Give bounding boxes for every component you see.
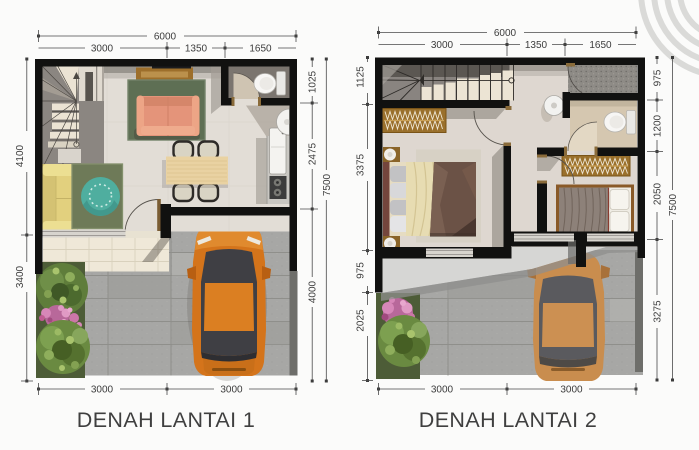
svg-text:4000: 4000: [308, 280, 319, 303]
svg-text:975: 975: [653, 69, 664, 86]
svg-text:3000: 3000: [91, 44, 114, 55]
svg-text:DENAH LANTAI 1: DENAH LANTAI 1: [77, 408, 255, 432]
svg-text:7500: 7500: [322, 173, 333, 196]
svg-text:2475: 2475: [308, 142, 319, 165]
svg-text:1125: 1125: [356, 66, 367, 88]
svg-text:3275: 3275: [653, 300, 664, 323]
svg-text:3000: 3000: [91, 385, 114, 396]
svg-text:1025: 1025: [308, 70, 319, 93]
svg-text:975: 975: [356, 262, 367, 279]
svg-text:3000: 3000: [431, 40, 454, 51]
svg-text:6000: 6000: [154, 32, 177, 43]
svg-text:1200: 1200: [653, 114, 664, 137]
svg-text:3000: 3000: [220, 385, 243, 396]
svg-text:6000: 6000: [494, 28, 517, 39]
svg-text:1650: 1650: [589, 40, 612, 51]
svg-text:2025: 2025: [356, 309, 367, 332]
svg-text:3375: 3375: [356, 153, 367, 176]
svg-text:2050: 2050: [653, 182, 664, 205]
svg-text:3000: 3000: [560, 385, 583, 396]
svg-text:DENAH LANTAI 2: DENAH LANTAI 2: [419, 408, 597, 432]
svg-text:3000: 3000: [431, 385, 454, 396]
svg-text:3400: 3400: [15, 265, 26, 288]
svg-text:7500: 7500: [668, 193, 679, 216]
svg-text:1650: 1650: [249, 44, 272, 55]
svg-text:4100: 4100: [15, 144, 26, 167]
svg-text:1350: 1350: [185, 44, 208, 55]
svg-text:1350: 1350: [525, 40, 548, 51]
